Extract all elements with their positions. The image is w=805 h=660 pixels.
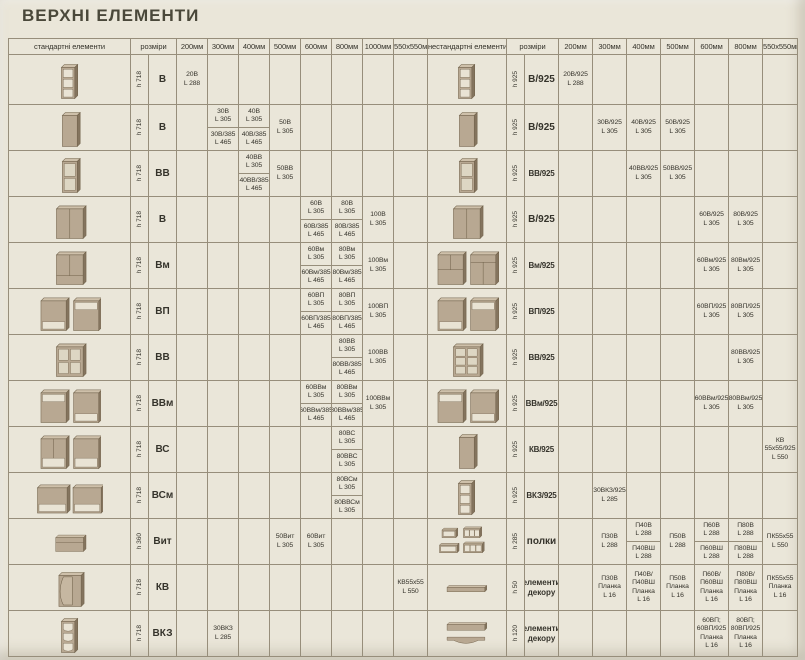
catalog-cell-empty (763, 243, 798, 289)
wall-cabinet-pair-niche-icon (38, 292, 102, 332)
catalog-cell-empty (208, 289, 239, 335)
item-code: П50В L 288 (669, 533, 686, 550)
catalog-cell-empty (239, 335, 270, 381)
catalog-cell: 100ВВм L 305 (363, 381, 394, 427)
element-code: ВС (149, 427, 177, 473)
catalog-cell-empty (661, 197, 695, 243)
item-code: 50ВВ/925 L 305 (663, 165, 692, 182)
catalog-cell-empty (363, 611, 394, 657)
catalog-cell-empty (270, 55, 301, 105)
catalog-cell-empty (239, 473, 270, 519)
catalog-cell-empty (559, 243, 593, 289)
element-illustration-cell (428, 197, 507, 243)
catalog-cell: ПК55х55 Планка L 16 (763, 565, 798, 611)
catalog-cell-empty (661, 381, 695, 427)
catalog-cell-empty (208, 243, 239, 289)
catalog-cell-empty (208, 519, 239, 565)
element-height: h 718 (131, 105, 149, 151)
element-height: h 718 (131, 151, 149, 197)
element-code: ВКЗ/925 (525, 473, 559, 519)
item-code: П40В L 288 (635, 522, 652, 539)
element-illustration-cell (428, 611, 507, 657)
catalog-cell-empty (301, 105, 332, 151)
catalog-cell: 40ВВ L 30540ВВ/385 L 465 (239, 151, 270, 197)
element-code-label: КВ/925 (529, 445, 554, 455)
catalog-cell-empty (177, 611, 208, 657)
catalog-cell-empty (208, 335, 239, 381)
item-code: П80В/П80ВШ Планка L 16 (729, 571, 762, 605)
item-code: 60Вм L 305 (308, 246, 324, 263)
element-code: елементи декору (525, 565, 559, 611)
catalog-cell-empty (332, 55, 363, 105)
wall-cabinet-door-icon (55, 108, 85, 148)
catalog-cell-empty (177, 381, 208, 427)
element-illustration-cell (9, 335, 131, 381)
item-code: ПК55х55 Планка L 16 (767, 575, 794, 600)
catalog-cell-empty (559, 473, 593, 519)
table-row: h 718Вм60Вм L 30560Вм/385 L 46580Вм L 30… (9, 243, 798, 289)
catalog-cell-empty (363, 565, 394, 611)
catalog-cell-empty (363, 55, 394, 105)
element-illustration-cell (9, 243, 131, 289)
table-row: h 718В60В L 30560В/385 L 46580В L 30580В… (9, 197, 798, 243)
item-code: 20В L 288 (184, 71, 200, 88)
item-code: 60ВП L 305 (308, 292, 325, 309)
item-code: 100Вм L 305 (368, 257, 388, 274)
element-illustration-cell (9, 565, 131, 611)
catalog-cell-empty (208, 197, 239, 243)
column-header: 200мм (559, 39, 593, 55)
catalog-cell: 80Вм/925 L 305 (729, 243, 763, 289)
element-height-label: h 718 (136, 487, 143, 503)
element-code: В (149, 197, 177, 243)
catalog-cell: 80ВП; 80ВП/925 Планка L 16 (729, 611, 763, 657)
element-code: полки (525, 519, 559, 565)
column-header: 800мм (729, 39, 763, 55)
catalog-cell-empty (661, 55, 695, 105)
wall-cabinet-pair-m-icon (435, 246, 499, 286)
catalog-table: стандартні елементи розміри 200мм 300мм … (8, 38, 798, 657)
column-header: 400мм (239, 39, 270, 55)
element-code-label: В/925 (528, 74, 555, 86)
element-height: h 718 (131, 473, 149, 519)
item-code: 80ВП; 80ВП/925 Планка L 16 (731, 617, 760, 651)
table-row: h 718ВКЗ30ВКЗ L 285h 120елементи декору6… (9, 611, 798, 657)
catalog-cell-empty (208, 381, 239, 427)
catalog-cell-empty (332, 519, 363, 565)
catalog-cell-empty (661, 243, 695, 289)
catalog-cell: 50В/925 L 305 (661, 105, 695, 151)
element-height: h 285 (507, 519, 525, 565)
element-height-label: h 718 (136, 625, 143, 641)
catalog-cell-empty (593, 381, 627, 427)
element-height: h 718 (131, 243, 149, 289)
item-code: 60Вм/385 L 465 (301, 269, 330, 286)
catalog-cell-empty (270, 197, 301, 243)
corner-cabinet-icon (53, 568, 86, 608)
item-code: 50В L 305 (277, 119, 293, 136)
shelves-set-icon (437, 525, 496, 559)
element-height-label: h 925 (512, 119, 519, 135)
catalog-cell-empty (239, 427, 270, 473)
element-height: h 360 (131, 519, 149, 565)
element-height: h 925 (507, 381, 525, 427)
catalog-cell-empty (177, 427, 208, 473)
catalog-cell-empty (363, 473, 394, 519)
catalog-cell-empty (394, 105, 428, 151)
item-code: П60ВШ L 288 (700, 545, 723, 562)
element-code: В/925 (525, 197, 559, 243)
catalog-cell-empty (627, 243, 661, 289)
catalog-cell-empty (394, 243, 428, 289)
table-row: h 718ВВм60ВВм L 30560ВВм/385 L 46580ВВм … (9, 381, 798, 427)
item-code: 60ВП/385 L 465 (301, 315, 330, 332)
catalog-cell: 30ВКЗ L 285 (208, 611, 239, 657)
element-illustration-cell (428, 565, 507, 611)
catalog-cell-empty (270, 565, 301, 611)
element-height: h 718 (131, 335, 149, 381)
column-header: 200мм (177, 39, 208, 55)
catalog-cell-empty (270, 611, 301, 657)
catalog-cell-empty (177, 565, 208, 611)
element-height: h 925 (507, 55, 525, 105)
catalog-cell-empty (627, 55, 661, 105)
column-header: 550х550мм (763, 39, 798, 55)
catalog-cell: 80ВСм L 30580ВВСм L 305 (332, 473, 363, 519)
catalog-cell-empty (301, 565, 332, 611)
catalog-cell-empty (394, 427, 428, 473)
item-code: 80ВВм/385 L 465 (332, 407, 363, 424)
table-row: h 718ВСм80ВСм L 30580ВВСм L 305h 925ВКЗ/… (9, 473, 798, 519)
catalog-cell-empty (627, 427, 661, 473)
element-code-label: КВ (156, 582, 169, 594)
element-height-label: h 718 (136, 349, 143, 365)
catalog-cell-empty (270, 335, 301, 381)
table-row: h 718ВВ80ВВ L 30580ВВ/385 L 465100ВВ L 3… (9, 335, 798, 381)
wall-cabinet-2-door-icon (449, 200, 485, 240)
element-height: h 925 (507, 197, 525, 243)
catalog-cell-empty (239, 611, 270, 657)
catalog-cell-empty (394, 381, 428, 427)
element-code: В (149, 105, 177, 151)
catalog-cell: 40В/925 L 305 (627, 105, 661, 151)
catalog-cell-empty (627, 289, 661, 335)
catalog-cell-empty (559, 289, 593, 335)
catalog-cell-empty (763, 197, 798, 243)
column-header: 300мм (208, 39, 239, 55)
item-code: 40ВВ/385 L 465 (239, 177, 268, 194)
catalog-cell-empty (729, 105, 763, 151)
catalog-cell-empty (239, 243, 270, 289)
element-height-label: h 360 (136, 533, 143, 549)
item-code: 30В L 305 (215, 108, 231, 125)
table-row: h 718ВП60ВП L 30560ВП/385 L 46580ВП L 30… (9, 289, 798, 335)
element-code-label: Вм/925 (528, 261, 554, 271)
element-code-label: В (159, 122, 166, 134)
catalog-cell-empty (270, 427, 301, 473)
catalog-cell-empty (239, 381, 270, 427)
catalog-cell-empty (239, 519, 270, 565)
column-header: 550х550мм (394, 39, 428, 55)
catalog-cell: 20В L 288 (177, 55, 208, 105)
item-code: 80ВП L 305 (339, 292, 356, 309)
item-code: П60В L 288 (703, 522, 720, 539)
item-code: 80ВСм L 305 (337, 476, 358, 493)
item-code: 50В/925 L 305 (665, 119, 690, 136)
catalog-cell-empty (593, 611, 627, 657)
element-height-label: h 925 (512, 303, 519, 319)
element-code: Вм/925 (525, 243, 559, 289)
valance-set-icon (437, 617, 496, 651)
catalog-cell-empty (763, 335, 798, 381)
table-row: h 718ВВ40ВВ L 30540ВВ/385 L 46550ВВ L 30… (9, 151, 798, 197)
catalog-cell: 80ВП/925 L 305 (729, 289, 763, 335)
item-code: КВ55х55 L 550 (397, 579, 423, 596)
element-illustration-cell (9, 197, 131, 243)
table-row: h 718КВКВ55х55 L 550h 50елементи декоруП… (9, 565, 798, 611)
catalog-cell-empty (208, 55, 239, 105)
catalog-cell: 80ВП L 30580ВП/385 L 465 (332, 289, 363, 335)
table-row: h 718ВС80ВС L 30580ВВС L 305h 925КВ/925К… (9, 427, 798, 473)
catalog-cell: 80ВС L 30580ВВС L 305 (332, 427, 363, 473)
column-header: 800мм (332, 39, 363, 55)
catalog-cell: 100ВВ L 305 (363, 335, 394, 381)
element-height: h 718 (131, 427, 149, 473)
catalog-cell: 60ВВм L 30560ВВм/385 L 465 (301, 381, 332, 427)
item-code: 40ВВ/925 L 305 (629, 165, 658, 182)
element-height: h 718 (131, 381, 149, 427)
catalog-cell: 60ВВм/925 L 305 (695, 381, 729, 427)
element-code: ВП (149, 289, 177, 335)
element-code-label: ВВ/925 (529, 169, 555, 179)
catalog-cell-empty (301, 427, 332, 473)
catalog-table-body: h 718В20В L 288h 925В/92520В/925 L 288h … (9, 55, 798, 657)
element-illustration-cell (428, 381, 507, 427)
element-height: h 925 (507, 427, 525, 473)
element-illustration-cell (9, 105, 131, 151)
catalog-cell-empty (695, 427, 729, 473)
element-code: ВВм/925 (525, 381, 559, 427)
wall-cabinet-pair-shelf-icon (38, 430, 102, 470)
element-height-label: h 925 (512, 487, 519, 503)
element-code-label: Вм (155, 260, 170, 272)
wall-cabinet-2-door-icon (52, 200, 88, 240)
element-illustration-cell (9, 381, 131, 427)
element-illustration-cell (9, 55, 131, 105)
catalog-cell-empty (559, 197, 593, 243)
element-code: ВКЗ (149, 611, 177, 657)
element-code: Вит (149, 519, 177, 565)
catalog-cell: 30В L 30530В/385 L 465 (208, 105, 239, 151)
item-code: 80ВВ L 305 (339, 338, 355, 355)
item-code: 60ВВм/385 L 465 (301, 407, 332, 424)
item-code: 80ВВм/925 L 305 (729, 395, 763, 412)
element-illustration-cell (428, 519, 507, 565)
wall-cabinet-pair-niche-m-icon (38, 384, 102, 424)
table-row: h 718В20В L 288h 925В/92520В/925 L 288 (9, 55, 798, 105)
element-height-label: h 120 (512, 625, 519, 641)
catalog-cell: 100В L 305 (363, 197, 394, 243)
wall-shelf-open-3-icon (454, 476, 479, 516)
element-illustration-cell (428, 335, 507, 381)
item-code: П80ВШ L 288 (734, 545, 757, 562)
element-height: h 718 (131, 289, 149, 335)
element-code: елементи декору (525, 611, 559, 657)
item-code: 100ВВм L 305 (366, 395, 390, 412)
catalog-cell-empty (627, 381, 661, 427)
element-height: h 50 (507, 565, 525, 611)
element-height: h 718 (131, 55, 149, 105)
element-code-label: Вит (153, 536, 171, 548)
catalog-cell: 100Вм L 305 (363, 243, 394, 289)
element-code-label: ВВ (155, 168, 169, 180)
item-code: 30В/925 L 305 (597, 119, 622, 136)
element-code: ВВм (149, 381, 177, 427)
wall-shelf-open-3-icon (57, 60, 82, 100)
catalog-cell: 30В/925 L 305 (593, 105, 627, 151)
wall-cabinet-glass-4-icon (52, 338, 88, 378)
catalog-cell-empty (729, 55, 763, 105)
item-code: КВ 55х55/925 L 550 (765, 437, 796, 462)
catalog-cell-empty (763, 611, 798, 657)
catalog-cell-empty (559, 105, 593, 151)
element-code: ВВ (149, 151, 177, 197)
catalog-cell-empty (394, 519, 428, 565)
catalog-cell-empty (177, 151, 208, 197)
catalog-cell-empty (177, 289, 208, 335)
catalog-cell-empty (208, 427, 239, 473)
catalog-cell-empty (559, 151, 593, 197)
item-code: 80Вм/385 L 465 (332, 269, 361, 286)
catalog-cell-empty (363, 519, 394, 565)
element-code: ВВ/925 (525, 151, 559, 197)
catalog-cell: П30В L 288 (593, 519, 627, 565)
catalog-cell-empty (239, 197, 270, 243)
element-illustration-cell (428, 473, 507, 519)
element-code-label: В/925 (528, 122, 555, 134)
catalog-cell-empty (208, 565, 239, 611)
catalog-cell-empty (695, 55, 729, 105)
catalog-cell-empty (177, 473, 208, 519)
catalog-cell-empty (763, 105, 798, 151)
item-code: 80Вм/925 L 305 (731, 257, 760, 274)
item-code: 80В L 305 (339, 200, 355, 217)
catalog-cell-empty (177, 335, 208, 381)
table-row: h 360Вит50Вит L 30560Вит L 305h 285полки… (9, 519, 798, 565)
element-height-label: h 925 (512, 257, 519, 273)
column-header: 300мм (593, 39, 627, 55)
element-code: ВП/925 (525, 289, 559, 335)
catalog-cell: 50ВВ L 305 (270, 151, 301, 197)
catalog-cell: 50ВВ/925 L 305 (661, 151, 695, 197)
element-code: ВСм (149, 473, 177, 519)
decor-plank-icon (437, 571, 496, 605)
catalog-cell-empty (593, 335, 627, 381)
wall-cabinet-glass-2-icon (55, 154, 85, 194)
item-code: 60ВП; 60ВП/925 Планка L 16 (697, 617, 726, 651)
element-code-label: ВП (155, 306, 169, 318)
element-height-label: h 50 (512, 581, 519, 594)
catalog-cell-empty (208, 473, 239, 519)
catalog-cell-empty (661, 335, 695, 381)
element-height-label: h 925 (512, 395, 519, 411)
item-code: 80ВВм L 305 (337, 384, 358, 401)
item-code: 60ВВм L 305 (306, 384, 327, 401)
catalog-cell-empty (301, 473, 332, 519)
catalog-cell-empty (177, 105, 208, 151)
catalog-cell: 80В L 30580В/385 L 465 (332, 197, 363, 243)
item-code: 60В/925 L 305 (699, 211, 724, 228)
catalog-cell-empty (729, 473, 763, 519)
element-code: ВВ/925 (525, 335, 559, 381)
element-code-label: ВКЗ (153, 628, 173, 640)
element-code-label: ВВ/925 (529, 353, 555, 363)
catalog-cell: 60Вм/925 L 305 (695, 243, 729, 289)
wall-cabinet-door-icon (452, 430, 482, 470)
catalog-cell-empty (593, 197, 627, 243)
item-code: 60Вм/925 L 305 (697, 257, 726, 274)
element-code: ВВ (149, 335, 177, 381)
catalog-cell-empty (332, 565, 363, 611)
element-height-label: h 718 (136, 119, 143, 135)
item-code: 100В L 305 (370, 211, 386, 228)
element-height-label: h 718 (136, 71, 143, 87)
element-code: В/925 (525, 55, 559, 105)
item-code: 40ВВ L 305 (246, 154, 262, 171)
catalog-cell-empty (729, 427, 763, 473)
item-code: П30В L 288 (601, 533, 618, 550)
item-code: 80ВП/925 L 305 (731, 303, 760, 320)
item-code: 20В/925 L 288 (563, 71, 588, 88)
element-code-label: ВКЗ/925 (526, 491, 556, 501)
wall-cabinet-glass-2-icon (452, 154, 482, 194)
catalog-cell: 30ВКЗ/925 L 285 (593, 473, 627, 519)
item-code: 60В L 305 (308, 200, 324, 217)
element-height-label: h 718 (136, 211, 143, 227)
catalog-cell-empty (239, 55, 270, 105)
catalog-cell-empty (177, 243, 208, 289)
catalog-cell-empty (177, 519, 208, 565)
catalog-cell: 60ВП L 30560ВП/385 L 465 (301, 289, 332, 335)
catalog-cell-empty (394, 197, 428, 243)
header-left-sizes: розміри (131, 39, 177, 55)
catalog-cell-empty (363, 105, 394, 151)
catalog-cell-empty (394, 335, 428, 381)
item-code: 80ВВС L 305 (337, 453, 358, 470)
element-height-label: h 718 (136, 257, 143, 273)
catalog-cell-empty (270, 473, 301, 519)
item-code: 40В/385 L 465 (242, 131, 267, 148)
catalog-cell: КВ 55х55/925 L 550 (763, 427, 798, 473)
element-illustration-cell (9, 473, 131, 519)
element-height-label: h 285 (512, 533, 519, 549)
catalog-cell: П40В L 288П40ВШ L 288 (627, 519, 661, 565)
item-code: 80ВП/385 L 465 (332, 315, 361, 332)
item-code: 50Вит L 305 (276, 533, 295, 550)
element-code-label: ВВм/925 (526, 399, 558, 409)
catalog-cell-empty (270, 381, 301, 427)
element-height: h 718 (131, 565, 149, 611)
catalog-cell-empty (559, 381, 593, 427)
element-height-label: h 925 (512, 211, 519, 227)
catalog-cell: П40В/П40ВШ Планка L 16 (627, 565, 661, 611)
element-height: h 925 (507, 151, 525, 197)
catalog-cell: П60В L 288П60ВШ L 288 (695, 519, 729, 565)
catalog-cell-empty (627, 197, 661, 243)
catalog-cell-empty (593, 289, 627, 335)
catalog-cell-empty (559, 565, 593, 611)
element-illustration-cell (9, 151, 131, 197)
